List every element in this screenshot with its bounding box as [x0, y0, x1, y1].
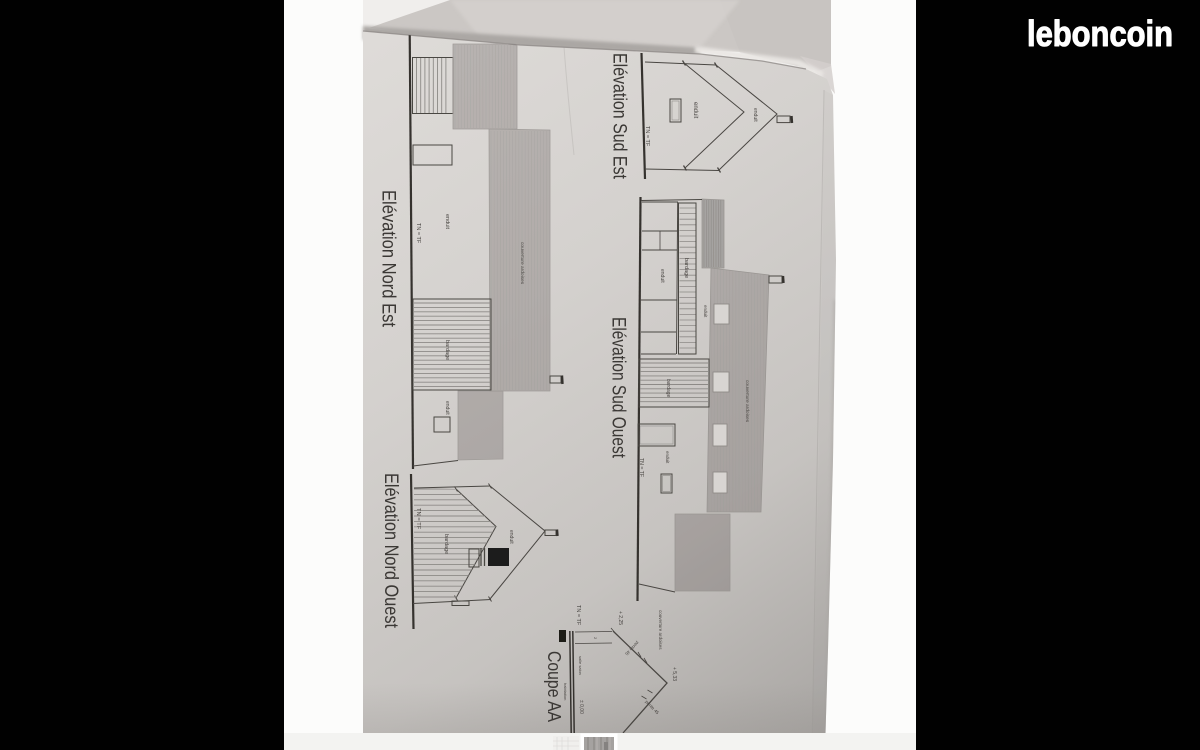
svg-text:bardage: bardage — [665, 379, 671, 398]
svg-text:couverture ardoises: couverture ardoises — [658, 610, 663, 650]
svg-text:TN = TF: TN = TF — [644, 126, 650, 147]
svg-text:leboncoin: leboncoin — [1027, 13, 1173, 54]
svg-text:TN = TF: TN = TF — [638, 458, 644, 477]
svg-text:TN = TF: TN = TF — [415, 508, 421, 530]
svg-text:bardage: bardage — [683, 258, 689, 278]
svg-text:enduit: enduit — [703, 305, 708, 318]
svg-text:enduit: enduit — [752, 108, 758, 122]
svg-text:enduit: enduit — [692, 102, 698, 119]
svg-text:enduit: enduit — [665, 451, 670, 464]
svg-text:bardage: bardage — [444, 340, 450, 360]
svg-text:enduit: enduit — [508, 530, 514, 544]
svg-text:enduit: enduit — [444, 214, 450, 229]
svg-text:enduit: enduit — [659, 269, 665, 283]
svg-text:Coupe AA: Coupe AA — [544, 651, 564, 722]
svg-text:TN = TF: TN = TF — [575, 605, 581, 626]
svg-text:± 0,00: ± 0,00 — [578, 700, 584, 714]
svg-text:couverture ardoises: couverture ardoises — [519, 242, 525, 285]
svg-text:Elévation Sud Est: Elévation Sud Est — [609, 53, 630, 180]
svg-text:Elévation Nord Ouest: Elévation Nord Ouest — [380, 473, 401, 629]
svg-text:TN = TF: TN = TF — [415, 223, 421, 244]
svg-text:couverture ardoises: couverture ardoises — [744, 380, 750, 423]
svg-text:Elévation Sud Ouest: Elévation Sud Ouest — [608, 317, 629, 459]
svg-text:bardage: bardage — [443, 534, 449, 554]
svg-text:salle salon: salle salon — [578, 656, 583, 675]
svg-text:+ 2,25: + 2,25 — [617, 611, 623, 625]
svg-text:+ 5,33: + 5,33 — [671, 667, 677, 681]
svg-text:habitation: habitation — [563, 683, 568, 700]
svg-text:enduit: enduit — [444, 401, 450, 415]
svg-text:Elévation Nord Est: Elévation Nord Est — [378, 190, 399, 328]
